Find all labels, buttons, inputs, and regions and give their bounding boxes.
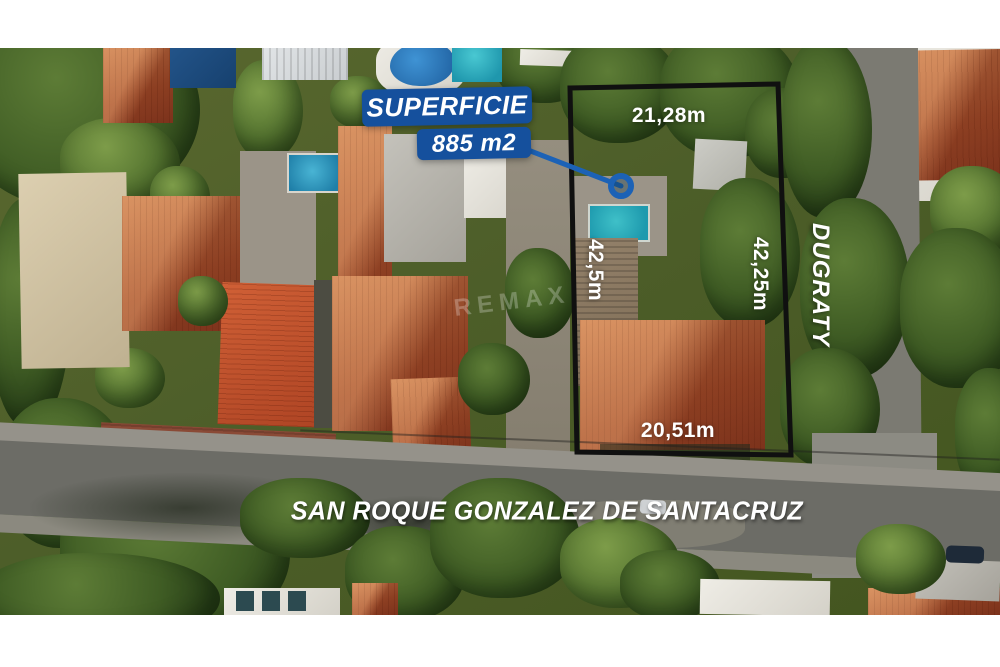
alley-shadow — [314, 280, 332, 428]
street-name-horizontal: SAN ROQUE GONZALEZ DE SANTACRUZ — [291, 496, 803, 527]
pool-cover-tarp — [170, 48, 236, 88]
superficie-label: SUPERFICIE — [362, 86, 533, 127]
white-building-roof — [700, 579, 831, 615]
measurement-bottom: 20,51m — [641, 419, 715, 443]
roof-panel — [288, 591, 306, 611]
tree-canopy — [458, 343, 530, 415]
measurement-left: 42,5m — [583, 239, 607, 301]
metal-roof — [262, 48, 348, 80]
tree-canopy — [856, 524, 946, 594]
real-estate-listing-image: SUPERFICIE 885 m2 21,28m 42,5m 42,25m 20… — [0, 0, 1000, 667]
roof-panel — [236, 591, 254, 611]
tree-canopy — [178, 276, 228, 326]
aerial-photo: SUPERFICIE 885 m2 21,28m 42,5m 42,25m 20… — [0, 48, 1000, 615]
tile-roof-house — [352, 583, 398, 615]
roof-panel — [262, 591, 280, 611]
tile-roof-house — [103, 48, 173, 123]
measurement-top: 21,28m — [632, 104, 706, 128]
area-value-label: 885 m2 — [417, 127, 532, 160]
tree-canopy — [900, 228, 1000, 388]
swimming-pool — [452, 48, 502, 82]
tree-canopy — [782, 48, 872, 218]
measurement-right: 42,25m — [748, 237, 772, 311]
street-name-vertical: DUGRATY — [806, 223, 834, 347]
swimming-pool — [287, 153, 343, 193]
vacant-lot — [18, 172, 129, 369]
property-pool — [588, 204, 650, 242]
parked-car — [946, 545, 985, 563]
